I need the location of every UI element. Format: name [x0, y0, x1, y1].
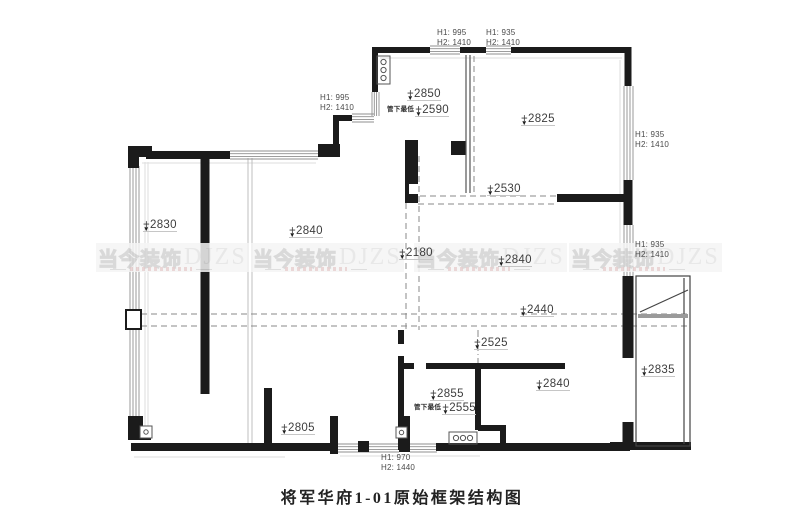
elevation-marker: +2840▼	[289, 225, 323, 237]
elevation-triangle-icon: ▼	[407, 96, 414, 103]
elevation-triangle-icon: ▼	[498, 262, 505, 269]
elevation-marker: +2805▼	[281, 422, 315, 434]
elevation-marker: +2840▼	[498, 254, 532, 266]
window-dimension-label: H1: 935H2: 1410	[635, 240, 669, 261]
elevation-marker: +2180▼	[399, 247, 433, 259]
elevation-marker: +2850▼	[407, 88, 441, 100]
elevation-marker: 管下最低+2555▼	[414, 401, 476, 414]
elevation-marker: +2525▼	[474, 337, 508, 349]
elevation-note: 管下最低	[387, 106, 414, 113]
window-dimension-label: H1: 935H2: 1410	[635, 130, 669, 151]
elevation-triangle-icon: ▼	[641, 372, 648, 379]
elevation-triangle-icon: ▼	[281, 430, 288, 437]
floorplan-canvas: 当今装饰DJZS当今装饰DJZS当今装饰DJZS当今装饰DJZS+2830▼+2…	[0, 0, 804, 531]
elevation-triangle-icon: ▼	[474, 345, 481, 352]
elevation-marker: +2855▼	[430, 388, 464, 400]
elevation-marker: +2440▼	[520, 304, 554, 316]
elevation-triangle-icon: ▼	[442, 410, 449, 417]
window-dimension-label: H1: 935H2: 1410	[486, 28, 520, 49]
watermark-subline	[110, 267, 212, 271]
elevation-marker: 管下最低+2590▼	[387, 103, 449, 116]
elevation-triangle-icon: ▼	[536, 386, 543, 393]
watermark: 当今装饰DJZS	[251, 243, 404, 272]
elevation-triangle-icon: ▼	[289, 233, 296, 240]
elevation-triangle-icon: ▼	[143, 227, 150, 234]
elevation-triangle-icon: ▼	[487, 191, 494, 198]
elevation-triangle-icon: ▼	[521, 121, 528, 128]
elevation-marker: +2835▼	[641, 364, 675, 376]
elevation-triangle-icon: ▼	[415, 112, 422, 119]
window-dimension-label: H1: 995H2: 1410	[320, 93, 354, 114]
watermark-subline	[265, 267, 367, 271]
elevation-note: 管下最低	[414, 404, 441, 411]
window-dimension-label: H1: 995H2: 1410	[437, 28, 471, 49]
elevation-marker: +2830▼	[143, 219, 177, 231]
watermark-subline	[428, 267, 530, 271]
elevation-triangle-icon: ▼	[399, 255, 406, 262]
window-dimension-label: H1: 970H2: 1440	[381, 453, 415, 474]
elevation-marker: +2825▼	[521, 113, 555, 125]
label-layer: 当今装饰DJZS当今装饰DJZS当今装饰DJZS当今装饰DJZS+2830▼+2…	[0, 0, 804, 531]
watermark: 当今装饰DJZS	[96, 243, 249, 272]
elevation-triangle-icon: ▼	[520, 312, 527, 319]
watermark-subline	[583, 267, 685, 271]
drawing-title: 将军华府1-01原始框架结构图	[0, 484, 804, 508]
watermark: 当今装饰DJZS	[414, 243, 567, 272]
elevation-marker: +2840▼	[536, 378, 570, 390]
elevation-marker: +2530▼	[487, 183, 521, 195]
